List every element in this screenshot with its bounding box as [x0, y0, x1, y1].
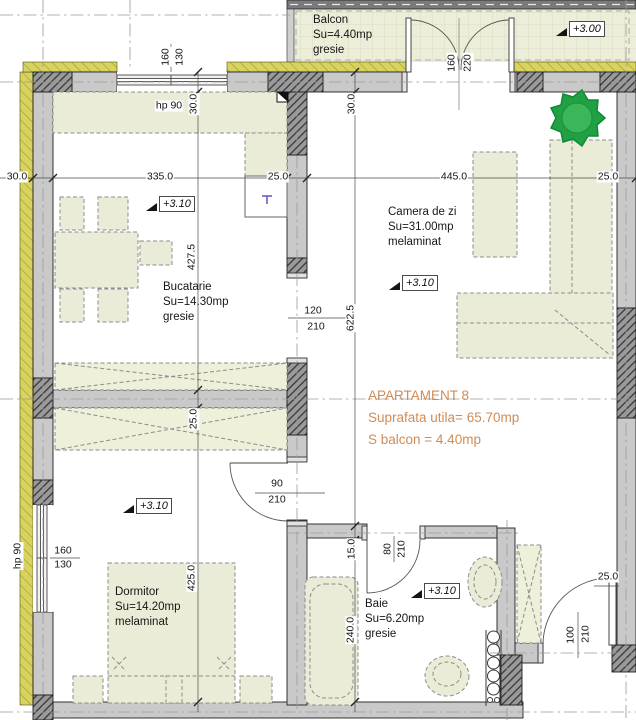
room-label-living: Camera de zi Su=31.00mp melaminat	[388, 205, 456, 251]
dim-wall-top-left: 30.0	[188, 93, 199, 115]
elevation-triangle-icon	[411, 590, 422, 598]
dim-bath-depth: 240.0	[345, 616, 356, 644]
nightstand	[73, 676, 103, 703]
door-kitchen-height: 210	[306, 321, 326, 332]
dim-entry-wall: 25.0	[597, 571, 619, 582]
chair	[98, 289, 128, 322]
elevation-value: +3.10	[402, 275, 438, 291]
window-parapet-bedroom: hp 90	[12, 542, 23, 570]
room-name: Camera de zi	[388, 205, 456, 220]
room-finish: gresie	[163, 310, 229, 325]
dim-wall-right: 25.0	[597, 171, 619, 182]
kitchen-counter	[53, 92, 287, 133]
room-name: Baie	[365, 597, 424, 612]
room-area: Su=4.40mp	[313, 28, 372, 43]
apartment-usable-area: Suprafata utila= 65.70mp	[368, 407, 519, 429]
room-label-bathroom: Baie Su=6.20mp gresie	[365, 597, 424, 643]
elevation-marker-kitchen: +3.10	[146, 196, 195, 212]
room-area: Su=14.30mp	[163, 295, 229, 310]
elevation-marker-bedroom: +3.10	[123, 498, 172, 514]
elevation-triangle-icon	[123, 505, 134, 513]
apartment-name: APARTAMENT 8	[368, 385, 519, 407]
room-label-balcony: Balcon Su=4.40mp gresie	[313, 13, 372, 59]
dim-bedroom-depth: 425.0	[186, 564, 197, 592]
dim-wall-jog: 15.0	[346, 538, 357, 560]
elevation-triangle-icon	[146, 203, 157, 211]
room-finish: melaminat	[115, 615, 181, 630]
chair	[140, 241, 172, 265]
window-bedroom-width: 160	[53, 545, 73, 556]
dim-closet-wall: 25.0	[188, 408, 199, 430]
door-bedroom-width: 90	[270, 478, 284, 489]
chair	[98, 197, 128, 230]
bedroom-door	[230, 457, 307, 526]
elevation-value: +3.10	[159, 196, 195, 212]
living-sofa	[457, 293, 613, 358]
door-bathroom-height: 210	[396, 539, 407, 559]
room-label-kitchen: Bucatarie Su=14.30mp gresie	[163, 280, 229, 326]
room-area: Su=14.20mp	[115, 600, 181, 615]
room-area: Su=6.20mp	[365, 612, 424, 627]
elevation-value: +3.10	[136, 498, 172, 514]
apartment-title-block: APARTAMENT 8 Suprafata utila= 65.70mp S …	[368, 385, 519, 451]
dim-wall-mid: 25.0	[267, 171, 289, 182]
elevation-value: +3.00	[569, 21, 605, 37]
elevation-marker-bathroom: +3.10	[411, 583, 460, 599]
elevation-marker-living: +3.10	[389, 275, 438, 291]
entrance-door	[538, 578, 616, 663]
dim-living-width: 445.0	[440, 171, 468, 182]
elevation-triangle-icon	[389, 282, 400, 290]
balcony-side-wall	[287, 9, 294, 62]
window-kitchen-height: 130	[174, 47, 185, 67]
door-kitchen-width: 120	[303, 305, 323, 316]
door-balcony-width: 160	[446, 53, 457, 73]
room-finish: gresie	[365, 627, 424, 642]
window-kitchen-width: 160	[160, 47, 171, 67]
window-bedroom-height: 130	[53, 559, 73, 570]
room-finish: gresie	[313, 43, 372, 58]
floor-plan-drawing	[0, 0, 636, 720]
elevation-marker-balcony: +3.00	[556, 21, 605, 37]
dim-living-depth: 622.5	[345, 304, 356, 332]
tree-symbol	[551, 90, 605, 146]
corner-mark	[277, 92, 288, 102]
dim-kitchen-width: 335.0	[146, 171, 174, 182]
door-entrance-height: 210	[580, 624, 591, 644]
dim-kitchen-depth: 427.5	[186, 243, 197, 271]
living-furniture	[457, 140, 613, 358]
room-finish: melaminat	[388, 235, 456, 250]
room-name: Bucatarie	[163, 280, 229, 295]
nightstand	[240, 676, 272, 703]
dim-wall-left: 30.0	[6, 171, 28, 182]
room-label-bedroom: Dormitor Su=14.20mp melaminat	[115, 585, 181, 631]
chair	[60, 289, 84, 322]
door-balcony-height: 220	[462, 53, 473, 73]
door-bedroom-height: 210	[267, 494, 287, 505]
elevation-value: +3.10	[424, 583, 460, 599]
bedroom-furniture	[73, 563, 272, 703]
door-entrance-width: 100	[565, 625, 576, 645]
room-name: Balcon	[313, 13, 372, 28]
chair	[60, 197, 84, 230]
room-area: Su=31.00mp	[388, 220, 456, 235]
dim-wall-top-mid: 30.0	[346, 93, 357, 115]
door-bathroom-width: 80	[382, 542, 393, 556]
dining-table	[55, 232, 138, 288]
elevation-triangle-icon	[556, 28, 567, 36]
room-name: Dormitor	[115, 585, 181, 600]
floor-plan: Balcon Su=4.40mp gresie Camera de zi Su=…	[0, 0, 636, 720]
apartment-balcony-area: S balcon = 4.40mp	[368, 429, 519, 451]
window-parapet-kitchen: hp 90	[155, 100, 183, 111]
living-table	[473, 152, 517, 257]
